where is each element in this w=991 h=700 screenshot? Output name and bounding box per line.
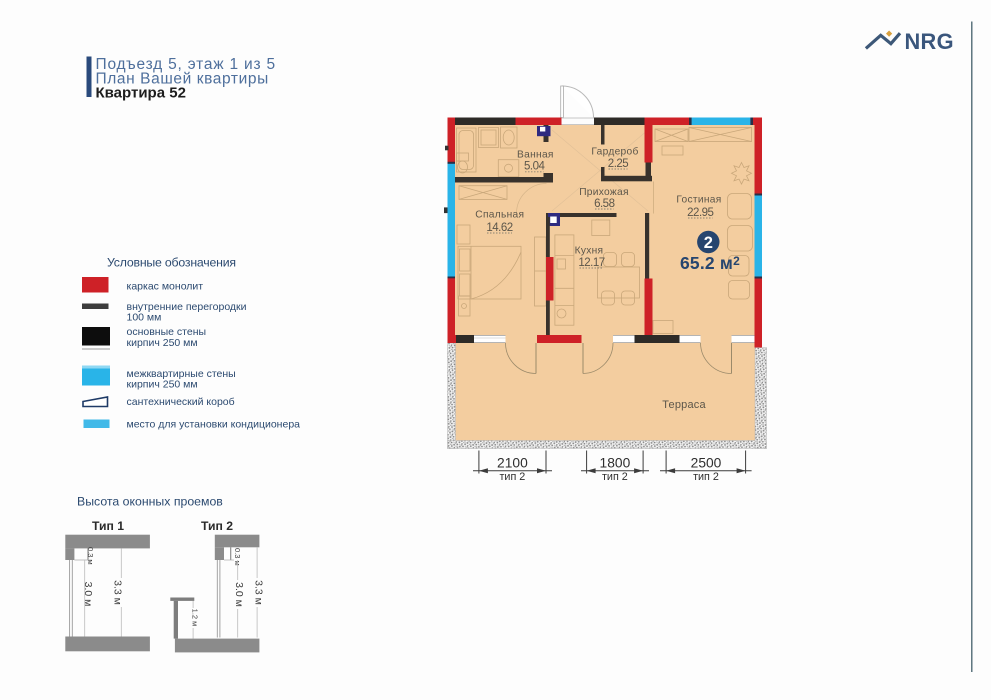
svg-text:3.0 м: 3.0 м (233, 582, 245, 607)
svg-text:3.3 м: 3.3 м (253, 580, 265, 605)
svg-text:3.0 м: 3.0 м (82, 582, 94, 607)
svg-text:2: 2 (704, 234, 713, 252)
svg-text:1.2 м: 1.2 м (191, 609, 200, 627)
svg-text:Ванная: Ванная (517, 150, 554, 161)
svg-text:Гардероб: Гардероб (591, 146, 638, 158)
svg-text:100 мм: 100 мм (127, 312, 162, 324)
svg-text:1800: 1800 (600, 455, 631, 470)
svg-text:Прихожая: Прихожая (579, 187, 629, 198)
svg-text:Кухня: Кухня (575, 246, 604, 257)
svg-text:кирпич 250 мм: кирпич 250 мм (127, 337, 198, 349)
svg-text:Терраса: Терраса (662, 399, 706, 411)
svg-text:2100: 2100 (497, 455, 528, 470)
svg-text:65.2 м2: 65.2 м2 (680, 253, 740, 273)
svg-text:тип 2: тип 2 (693, 471, 719, 483)
svg-text:22.95: 22.95 (687, 207, 713, 219)
svg-text:Условные обозначения: Условные обозначения (107, 256, 236, 270)
svg-text:Тип 1: Тип 1 (92, 519, 124, 533)
svg-text:14.62: 14.62 (486, 222, 512, 234)
svg-text:кирпич 250 мм: кирпич 250 мм (127, 379, 198, 391)
svg-text:3.3 м: 3.3 м (112, 580, 124, 605)
svg-text:6.58: 6.58 (594, 198, 614, 210)
svg-text:Спальная: Спальная (475, 210, 524, 221)
svg-text:5.04: 5.04 (524, 161, 545, 173)
svg-text:Высота оконных проемов: Высота оконных проемов (77, 495, 223, 509)
svg-text:Квартира 52: Квартира 52 (96, 85, 186, 102)
svg-text:2.25: 2.25 (608, 158, 628, 170)
svg-text:место для установки кондиционе: место для установки кондиционера (127, 419, 301, 431)
svg-text:каркас монолит: каркас монолит (127, 281, 204, 293)
svg-text:0.3 м: 0.3 м (86, 547, 95, 565)
svg-text:Тип 2: Тип 2 (201, 519, 233, 533)
svg-text:тип 2: тип 2 (602, 471, 628, 483)
svg-text:Гостиная: Гостиная (676, 195, 721, 206)
svg-text:NRG: NRG (905, 29, 954, 54)
svg-text:2500: 2500 (691, 455, 722, 470)
svg-text:тип 2: тип 2 (499, 471, 525, 483)
svg-text:сантехнический короб: сантехнический короб (127, 396, 235, 408)
svg-text:12.17: 12.17 (578, 257, 604, 269)
